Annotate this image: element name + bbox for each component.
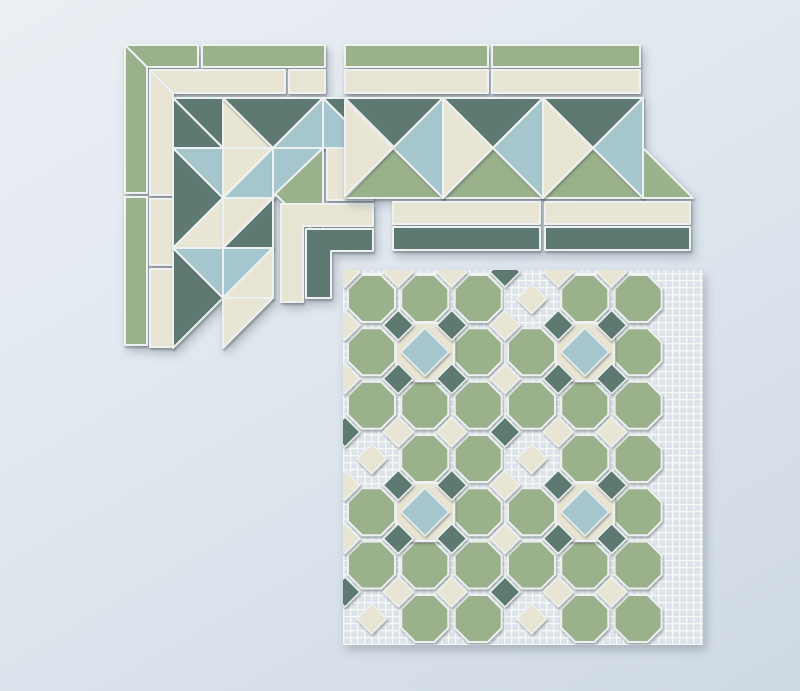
mosaic-tile-teal [393, 227, 540, 250]
mosaic-tile-sage [561, 382, 608, 429]
mosaic-tile-sage [561, 595, 608, 642]
mosaic-tile-sage [508, 382, 555, 429]
mosaic-tile-sage [202, 45, 325, 67]
mosaic-tile-sage [345, 45, 488, 67]
mosaic-tile-sage [561, 435, 608, 482]
mosaic-tile-sage [401, 382, 448, 429]
mosaic-tile-sage [508, 488, 555, 535]
mosaic-tile-sage [401, 275, 448, 322]
mosaic-tile-cream [345, 70, 488, 93]
mosaic-tile-sage [508, 328, 555, 375]
mosaic-tile-sage [615, 488, 662, 535]
mosaic-tile-sage [401, 542, 448, 589]
mosaic-tile-cream [545, 202, 690, 224]
field-mosaic-sheet [330, 257, 703, 645]
mosaic-tile-sage [615, 595, 662, 642]
mosaic-tile-sage [455, 542, 502, 589]
mosaic-tile-sage [455, 435, 502, 482]
mosaic-tile-cream [492, 70, 640, 93]
corner-border-piece [125, 45, 373, 348]
mosaic-tile-cream [150, 269, 173, 347]
mosaic-tile-sage [455, 595, 502, 642]
mosaic-tile-sage [643, 148, 693, 198]
mosaic-tile-sage [125, 197, 147, 345]
mosaic-tile-sage [401, 435, 448, 482]
mosaic-photo [0, 0, 800, 691]
mosaic-tile-cream [393, 202, 540, 224]
mosaic-tile-sage [348, 382, 395, 429]
mosaic-tile-sage [615, 435, 662, 482]
mosaic-tile-sage [615, 275, 662, 322]
mosaic-tile-sage [348, 488, 395, 535]
mosaic-tile-sage [492, 45, 640, 67]
mosaic-tile-sage [615, 542, 662, 589]
mosaic-tile-cream [150, 199, 173, 265]
mosaic-tile-sage [348, 328, 395, 375]
mosaic-tile-teal [545, 227, 690, 250]
mosaic-tile-sage [455, 382, 502, 429]
mosaic-tile-sage [615, 328, 662, 375]
mosaic-tile-cream [150, 70, 173, 195]
mosaic-tile-sage [455, 488, 502, 535]
mosaic-tile-sage [561, 542, 608, 589]
mosaic-tile-sage [455, 275, 502, 322]
mosaic-tile-sage [615, 382, 662, 429]
mosaic-tile-cream [223, 298, 273, 348]
mosaic-tile-sage [508, 542, 555, 589]
mosaic-tile-sage [455, 328, 502, 375]
border-strip-piece [345, 45, 693, 250]
mosaic-tile-sage [125, 45, 147, 193]
mosaic-tile-sage [561, 275, 608, 322]
mosaic-tile-cream [289, 70, 325, 93]
photo-background [0, 0, 800, 691]
mosaic-tile-sage [348, 542, 395, 589]
mosaic-tile-sage [401, 595, 448, 642]
mosaic-tile-sage [348, 275, 395, 322]
